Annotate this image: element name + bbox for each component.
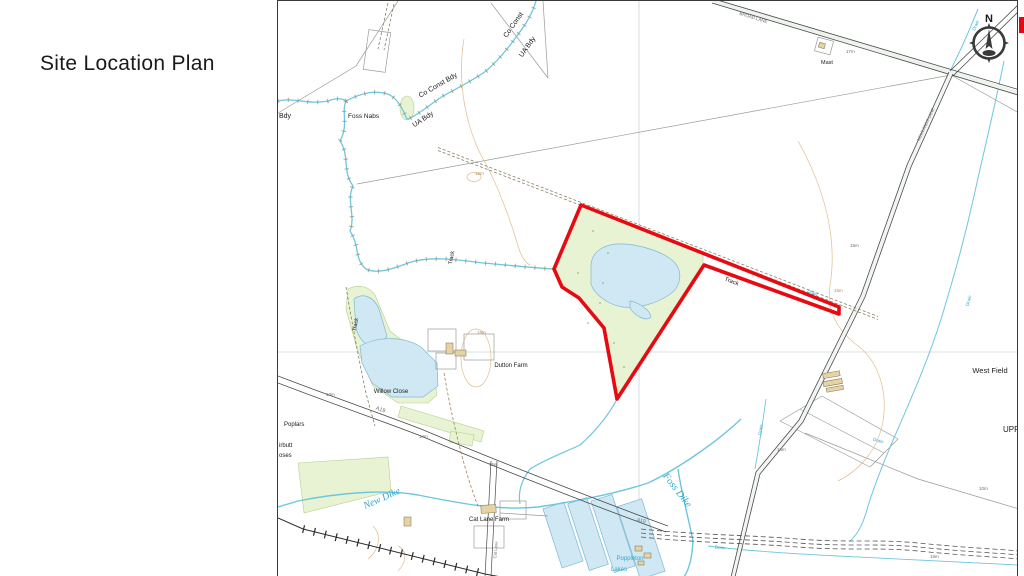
cat-lane-label: Cat Lane bbox=[492, 541, 499, 559]
lakeside-building bbox=[644, 553, 651, 558]
contour-label-15m-b: 15m bbox=[834, 288, 843, 293]
field-line bbox=[278, 1, 398, 113]
field-line bbox=[357, 75, 951, 184]
field-line bbox=[822, 396, 898, 439]
contour-label-16m-a: 16m bbox=[475, 171, 484, 176]
poppleton-lakes-label-1: Poppleton bbox=[616, 556, 643, 562]
enclosure bbox=[363, 30, 390, 73]
river-foss-branch-ticks bbox=[346, 1, 536, 119]
drain-label-6: Drain bbox=[715, 545, 727, 551]
lakeside-building bbox=[635, 546, 642, 551]
cutoff-label-1: irbutt bbox=[279, 443, 293, 449]
poppleton-lakes bbox=[543, 494, 665, 576]
drain-label-1: Drain bbox=[971, 19, 980, 31]
contour-label-15m-c: 15m bbox=[477, 330, 486, 335]
ua-bdy-label-1: UA Bdy bbox=[411, 110, 435, 129]
cat-lane-farm-building bbox=[481, 505, 496, 514]
spot-height-16m-b: 16m bbox=[777, 447, 786, 452]
contour-loop bbox=[461, 329, 491, 387]
railway bbox=[278, 518, 501, 576]
compass-base bbox=[983, 50, 996, 56]
spot-height-15m-d: 15m bbox=[489, 462, 498, 467]
mast-building bbox=[818, 42, 825, 48]
track-line bbox=[378, 3, 388, 49]
drain-label-5: Drain bbox=[757, 424, 764, 436]
ne-road-name-label: NEWLANDS LANE bbox=[916, 107, 936, 142]
upper-poppleton-cutoff-label: UPP bbox=[1003, 425, 1018, 434]
farm-enclosure bbox=[474, 526, 504, 548]
contour bbox=[798, 141, 884, 481]
field-line bbox=[800, 409, 884, 453]
spot-height-10m-a: 10m bbox=[326, 392, 335, 397]
site-location-map: N BdyFoss NabsCo Const BdyUA BdyCo Const… bbox=[277, 0, 1018, 576]
road-fill bbox=[714, 1, 1018, 93]
field-line bbox=[805, 433, 1018, 509]
bdy-cutoff-label: Bdy bbox=[279, 113, 292, 120]
compass-needle bbox=[986, 29, 993, 49]
building bbox=[823, 378, 843, 386]
ua-bdy-label-2: UA Bdy bbox=[518, 35, 537, 59]
spot-height-14m: 14m bbox=[419, 434, 428, 439]
page: Site Location Plan bbox=[0, 0, 1024, 576]
drain-label-3: Drain bbox=[965, 294, 973, 306]
road-edge bbox=[950, 5, 1018, 71]
contour bbox=[461, 39, 530, 265]
river-foss-branch bbox=[346, 1, 536, 119]
spot-height-17m: 17m bbox=[846, 49, 855, 54]
foss-nabs-label: Foss Nabs bbox=[348, 113, 380, 120]
farm-enclosure bbox=[436, 353, 456, 369]
broad-lane-road bbox=[712, 1, 1018, 95]
track-label-1: Track bbox=[448, 250, 456, 265]
farm-enclosure bbox=[464, 334, 494, 360]
cat-lane-farm-label: Cat Lane Farm bbox=[469, 517, 509, 523]
dutton-farm-building bbox=[455, 350, 466, 356]
road-edge bbox=[735, 74, 953, 576]
building bbox=[404, 517, 411, 526]
spot-height-15m-f: 15m bbox=[930, 554, 939, 559]
west-field-label: West Field bbox=[972, 366, 1007, 375]
map-canvas: N BdyFoss NabsCo Const BdyUA BdyCo Const… bbox=[278, 1, 1018, 576]
track-line bbox=[641, 529, 1018, 551]
willow-close-label: Willow Close bbox=[374, 389, 409, 395]
dutton-farm-building bbox=[446, 343, 453, 354]
a19-road-label-1: A19 bbox=[375, 406, 386, 415]
co-const-label-2: Co Const bbox=[503, 11, 526, 39]
legend-red-swatch-fragment bbox=[1019, 17, 1024, 33]
east-drain bbox=[850, 61, 1004, 541]
co-const-bdy-label-1: Co Const Bdy bbox=[418, 72, 459, 100]
north-label: N bbox=[985, 13, 993, 25]
poppleton-lakes-label-2: Lakes bbox=[611, 567, 627, 573]
legend-red-swatch bbox=[1019, 17, 1024, 33]
mast-label: Mast bbox=[821, 60, 833, 66]
poplars-label: Poplars bbox=[284, 422, 304, 428]
road-fill bbox=[733, 73, 951, 576]
bottom-track-road bbox=[641, 529, 1018, 559]
dutton-farm-label: Dutton Farm bbox=[494, 363, 527, 369]
cutoff-label-2: oses bbox=[279, 453, 292, 459]
foss-dike-label: Foss Dike bbox=[660, 470, 694, 510]
roadside-buildings bbox=[822, 371, 844, 393]
spot-height-15m-a: 15m bbox=[850, 243, 859, 248]
field-line bbox=[543, 1, 548, 78]
track-line bbox=[641, 533, 1018, 555]
contour bbox=[368, 526, 405, 571]
spot-height-10m-b: 10m bbox=[979, 486, 988, 491]
building bbox=[826, 385, 843, 392]
drain-label-4: Drain bbox=[873, 437, 885, 445]
field-line bbox=[500, 513, 548, 516]
page-title: Site Location Plan bbox=[40, 52, 215, 76]
